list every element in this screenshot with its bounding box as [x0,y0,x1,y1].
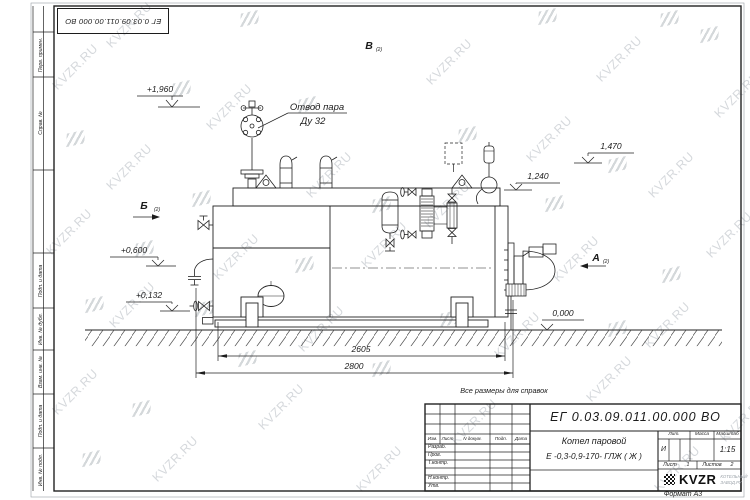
label-steam-outlet: Отвод пара [290,102,344,113]
top-stamp-doc-number: ЕГ 0.03.09.011.00.000 ВО [65,17,161,26]
col-podp: Подп. [490,434,512,444]
side-label-podp-data-2: Подп. и дата [37,398,45,444]
side-label-sprav-no: Справ. № [37,100,45,146]
ground-line [85,330,722,346]
elevation-1240: 1,240 [527,171,549,181]
sheet-label: Лист [660,461,680,469]
dim-2605: 2605 [351,344,371,354]
side-label-inv-podl: Инв. № подл. [37,447,45,493]
side-label-inv-dubl: Инв. № дубл. [37,306,45,352]
lit-value: И [658,439,669,461]
kvzr-logo: KVZR КОТЕЛЬНЫЙ ЗАВОД.РУ [664,472,747,487]
hidden-contour [445,143,462,172]
col-izm: Изм. [425,434,440,444]
view-label-v: В [365,40,373,52]
row-prov: Пров. [426,452,455,460]
drawing-sheet: KVZR.RUKVZR.RUKVZR.RUKVZR.RUKVZR.RUKVZR.… [0,0,750,500]
format-label: Формат А3 [648,491,718,498]
product-name: Котел паровой [532,434,656,449]
kvzr-logo-mark [664,474,675,485]
kvzr-logo-subtext: КОТЕЛЬНЫЙ ЗАВОД.РУ [720,474,747,485]
row-utv: Утв. [426,483,455,491]
elevation-0132: +0,132 [136,290,163,300]
elevation-1470: 1,470 [600,141,622,151]
view-label-a-ref: (2) [603,259,609,265]
separator-vessel [382,192,398,251]
row-tkontr: Т.контр. [426,460,455,468]
scale-label: Масштаб [714,431,741,439]
product-designation: Е -0,3-0,9-170- ГЛЖ ( Ж ) [532,449,656,464]
kvzr-logo-name: KVZR [679,472,716,487]
titleblock-doc-number: ЕГ 0.03.09.011.00.000 ВО [532,406,739,429]
view-label-b-ref: (2) [154,207,160,213]
kvzr-logo-sub2: ЗАВОД.РУ [720,480,747,485]
burner [504,243,556,330]
label-steam-outlet-dn: Ду 32 [300,116,326,127]
elevation-marks [110,96,634,330]
supports [215,297,488,327]
sheets-label: Листов [699,461,725,469]
view-label-v-ref: (2) [376,47,382,53]
lit-label: Лит. [658,431,690,439]
sheet-value: 1 [682,461,694,469]
mass-label: Масса [690,431,714,439]
elevation-0600: +0,600 [121,245,148,255]
lifting-lugs [256,175,472,188]
top-stamp: ЕГ 0.03.09.011.00.000 ВО [57,8,169,34]
pressure-gauge [476,142,497,204]
col-list: Лист [440,434,455,444]
safety-valves [280,156,337,188]
col-data: Дата [512,434,530,444]
side-label-perv-primen: Перв. примен. [37,32,45,78]
dim-2800: 2800 [344,361,364,371]
row-razrab: Разраб. [426,444,455,452]
view-label-b: Б [140,200,148,212]
scale-value: 1:15 [714,439,741,461]
col-ndoc: N докум. [455,434,490,444]
view-label-a: А [591,252,600,264]
elevation-1960: +1,960 [147,84,174,94]
sheets-value: 2 [726,461,738,469]
water-level-gauge [401,188,457,245]
side-label-podp-data-1: Подп. и дата [37,258,45,304]
row-nkontr: Н.контр. [426,475,455,483]
front-fittings [188,216,213,324]
elevation-0000: 0,000 [552,308,574,318]
steam-valve [241,101,263,188]
reference-note: Все размеры для справок [460,386,548,395]
side-label-vzam-inv: Взам. инв. № [37,349,45,395]
